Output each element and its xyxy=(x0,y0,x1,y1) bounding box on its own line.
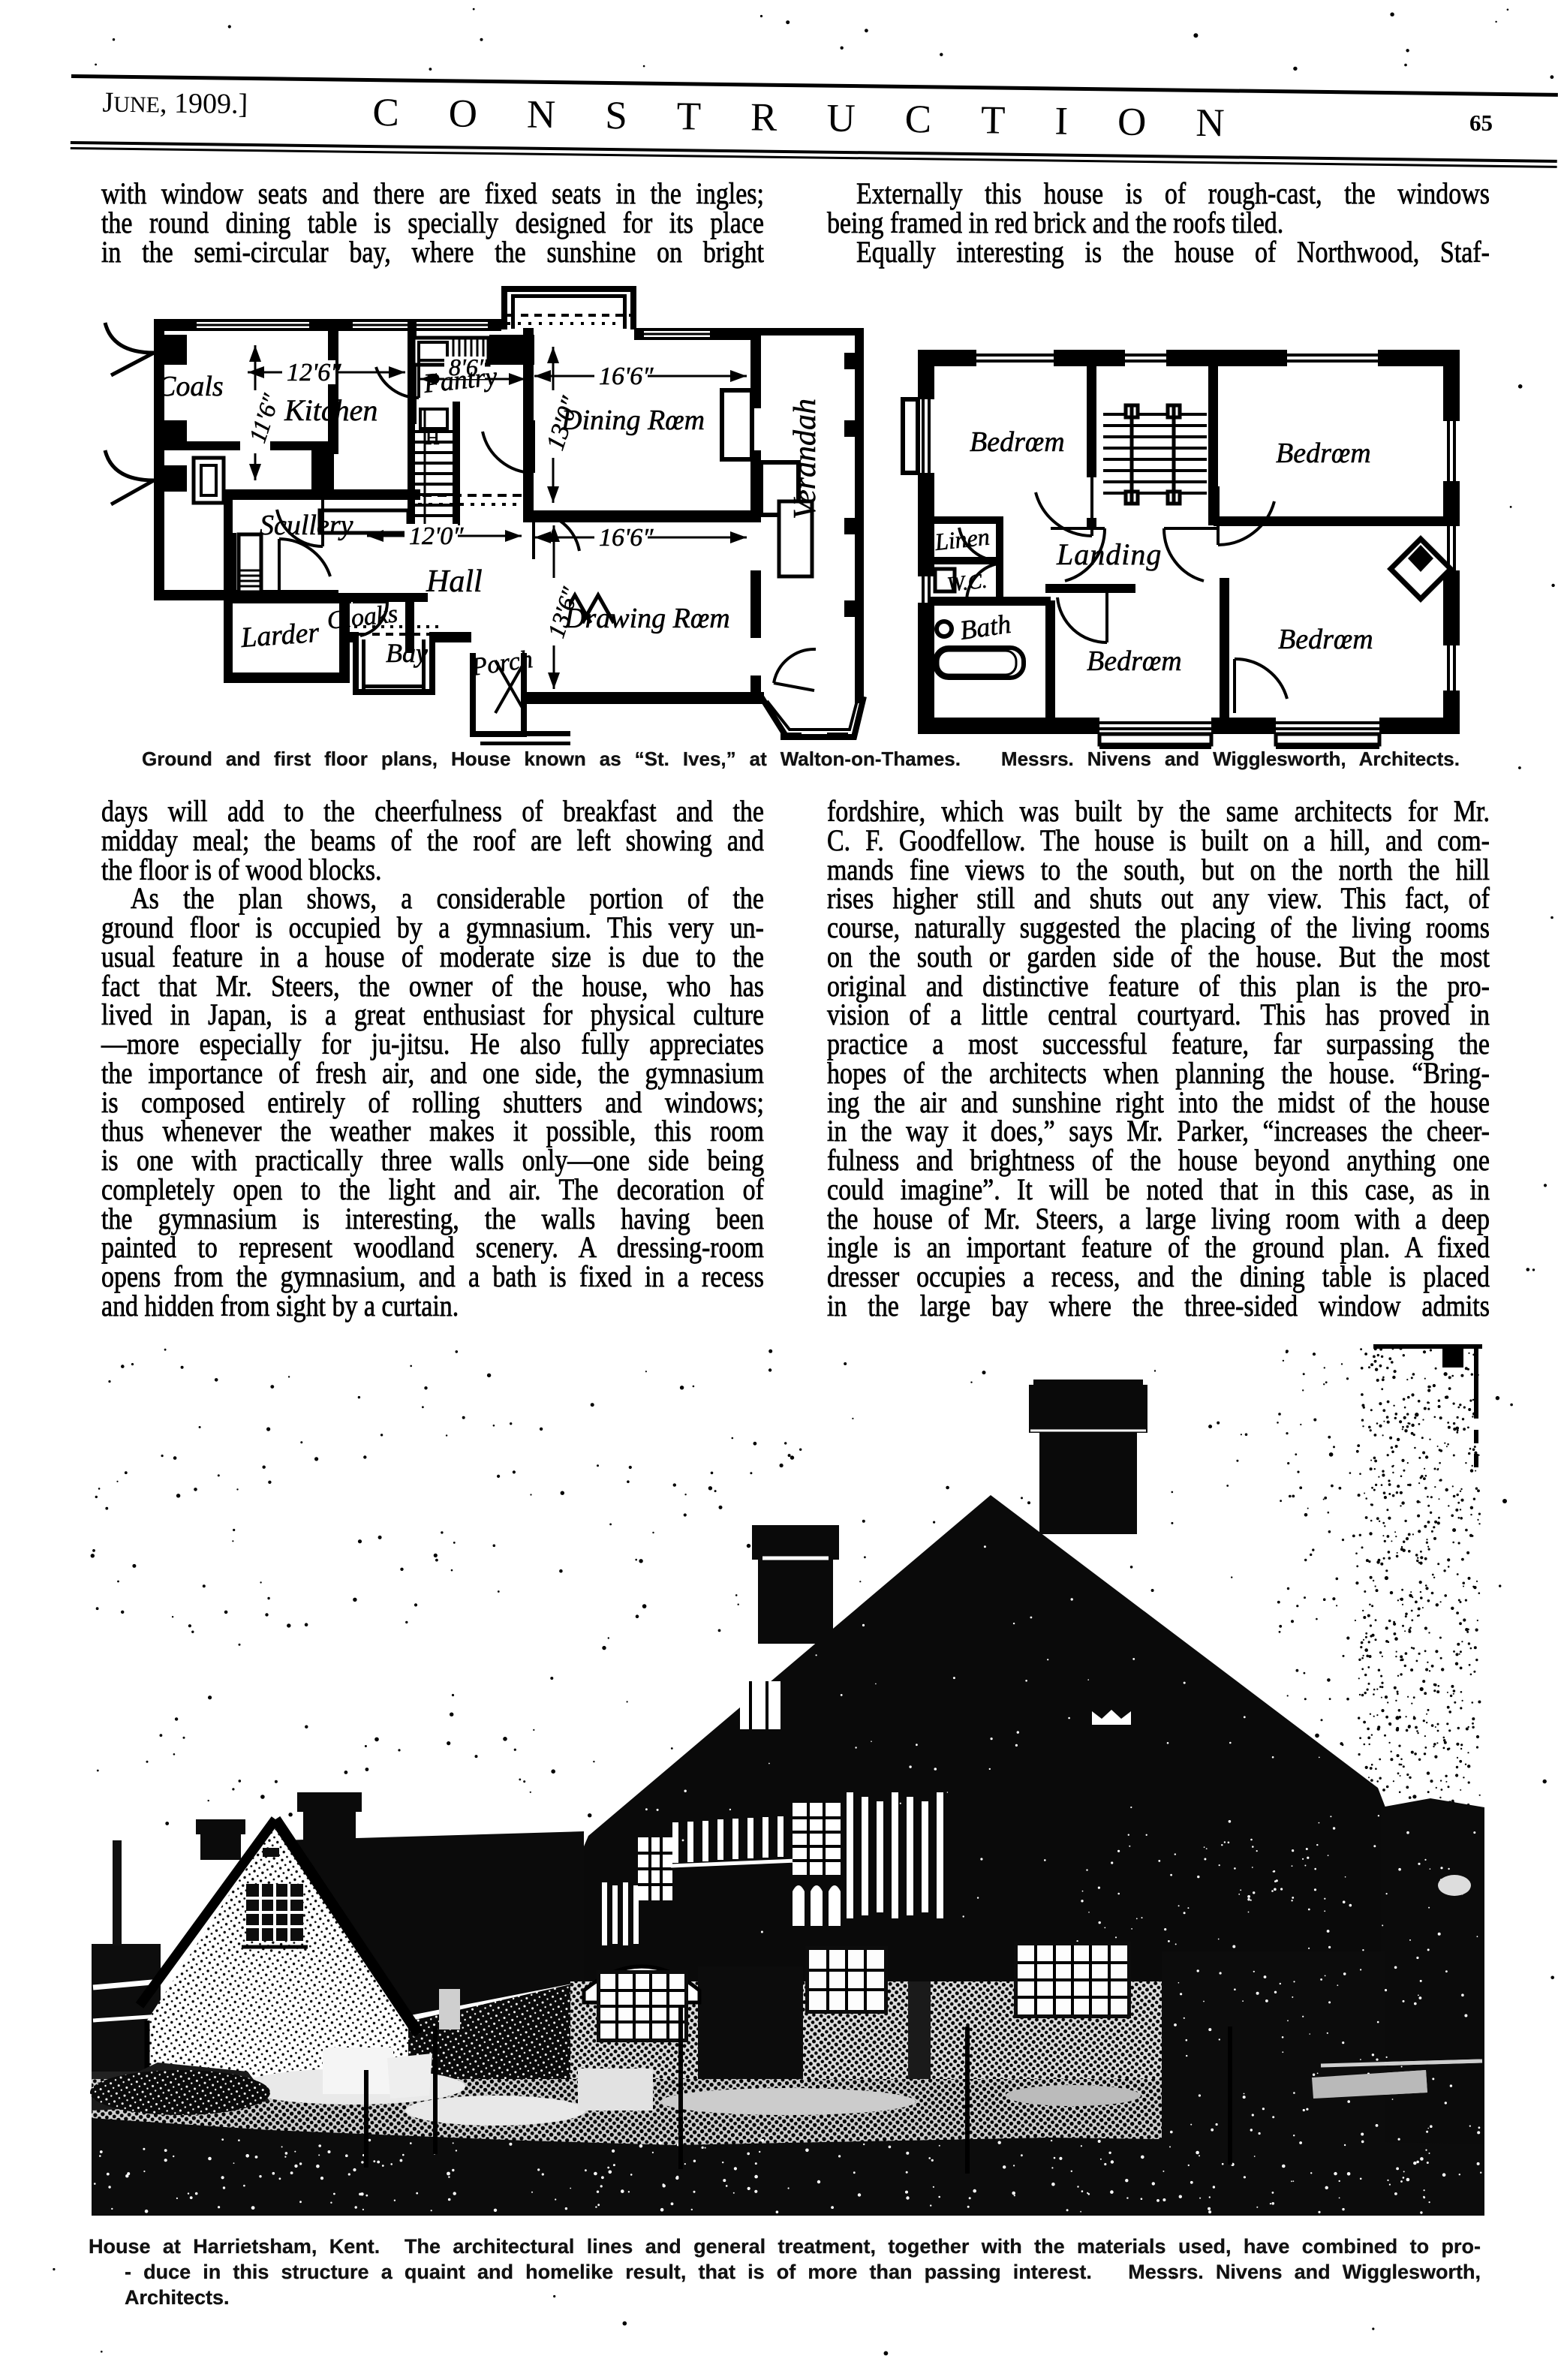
svg-text:Hall: Hall xyxy=(426,564,483,599)
svg-text:Coals: Coals xyxy=(157,371,224,402)
svg-text:Bedrœm: Bedrœm xyxy=(1087,645,1182,677)
svg-text:Dining Rœm: Dining Rœm xyxy=(561,405,705,436)
svg-text:16'6″: 16'6″ xyxy=(599,524,654,552)
svg-text:Bedrœm: Bedrœm xyxy=(1276,438,1371,469)
svg-text:Cloaks: Cloaks xyxy=(326,600,399,635)
svg-text:W.C.: W.C. xyxy=(946,570,988,597)
svg-text:Larder: Larder xyxy=(239,617,320,654)
svg-text:Verandah: Verandah xyxy=(788,399,823,519)
svg-text:Scullery: Scullery xyxy=(260,510,353,541)
svg-text:Drawing Rœm: Drawing Rœm xyxy=(564,603,730,634)
svg-text:16'6″: 16'6″ xyxy=(599,363,654,390)
svg-text:Linen: Linen xyxy=(933,523,991,556)
svg-text:Bay: Bay xyxy=(386,638,428,668)
svg-text:12'6″: 12'6″ xyxy=(287,359,341,387)
svg-text:Bedrœm: Bedrœm xyxy=(1278,624,1373,655)
svg-text:Kitchen: Kitchen xyxy=(284,393,377,427)
svg-text:12'0″: 12'0″ xyxy=(409,522,464,550)
svg-text:H: H xyxy=(426,427,440,449)
svg-text:Bedrœm: Bedrœm xyxy=(970,426,1065,458)
svg-text:Bath: Bath xyxy=(958,609,1013,645)
svg-text:Landing: Landing xyxy=(1056,537,1162,571)
